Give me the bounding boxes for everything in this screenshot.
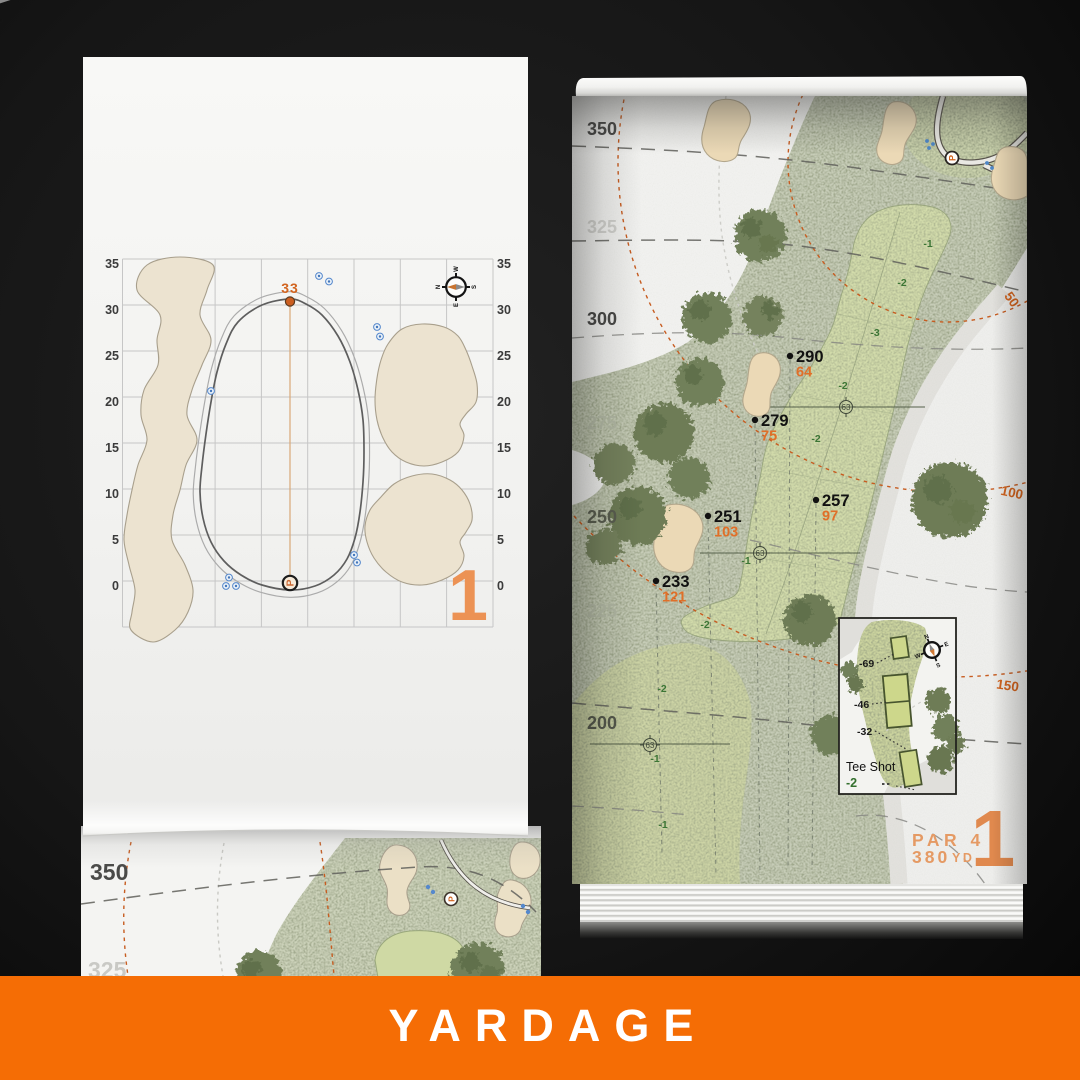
- svg-text:30: 30: [105, 303, 119, 317]
- svg-text:S: S: [472, 285, 478, 289]
- svg-text:290: 290: [796, 348, 824, 366]
- svg-text:5: 5: [497, 533, 504, 547]
- svg-text:10: 10: [497, 487, 511, 501]
- svg-text:-69: -69: [859, 658, 874, 670]
- svg-text:-32: -32: [857, 726, 872, 738]
- svg-text:-46: -46: [854, 699, 869, 711]
- svg-text:63: 63: [842, 403, 851, 412]
- svg-text:Tee Shot: Tee Shot: [846, 760, 896, 774]
- svg-text:-2: -2: [897, 277, 906, 289]
- svg-text:233: 233: [662, 573, 690, 591]
- svg-text:-2: -2: [846, 776, 857, 790]
- svg-text:-1: -1: [923, 238, 932, 250]
- svg-text:103: 103: [714, 525, 738, 541]
- svg-text:P: P: [447, 896, 457, 902]
- svg-text:0: 0: [497, 579, 504, 593]
- svg-text:279: 279: [761, 412, 789, 430]
- svg-text:75: 75: [761, 429, 777, 445]
- svg-text:N: N: [436, 285, 442, 289]
- svg-text:251: 251: [714, 508, 742, 526]
- svg-text:-2: -2: [811, 433, 820, 445]
- svg-text:S: S: [18, 0, 25, 2]
- svg-text:25: 25: [105, 349, 119, 363]
- svg-text:15: 15: [497, 441, 511, 455]
- svg-text:25: 25: [497, 349, 511, 363]
- svg-text:20: 20: [497, 395, 511, 409]
- svg-text:-3: -3: [870, 327, 879, 339]
- svg-text:30: 30: [497, 303, 511, 317]
- svg-text:E: E: [454, 303, 460, 307]
- svg-text:P: P: [285, 579, 297, 586]
- svg-text:1: 1: [448, 556, 488, 636]
- svg-text:257: 257: [822, 492, 850, 510]
- svg-text:20: 20: [105, 395, 119, 409]
- svg-text:YARDAGE: YARDAGE: [389, 1000, 708, 1051]
- svg-text:380: 380: [912, 847, 950, 867]
- svg-text:5: 5: [112, 533, 119, 547]
- svg-text:P: P: [948, 155, 958, 161]
- svg-text:35: 35: [497, 257, 511, 271]
- svg-text:121: 121: [662, 590, 686, 606]
- svg-text:-2: -2: [838, 380, 847, 392]
- svg-text:0: 0: [112, 579, 119, 593]
- svg-text:-1: -1: [658, 819, 667, 831]
- svg-text:15: 15: [105, 441, 119, 455]
- svg-text:35: 35: [105, 257, 119, 271]
- svg-text:-1: -1: [650, 753, 659, 765]
- svg-text:E: E: [0, 18, 4, 23]
- svg-text:10: 10: [105, 487, 119, 501]
- svg-text:W: W: [454, 266, 460, 272]
- svg-text:-1: -1: [741, 555, 750, 567]
- svg-text:97: 97: [822, 509, 838, 525]
- svg-text:-2: -2: [657, 683, 666, 695]
- svg-text:-2: -2: [700, 619, 709, 631]
- svg-text:63: 63: [756, 549, 765, 558]
- svg-text:33: 33: [281, 280, 299, 296]
- svg-text:64: 64: [796, 365, 812, 381]
- svg-text:63: 63: [646, 741, 655, 750]
